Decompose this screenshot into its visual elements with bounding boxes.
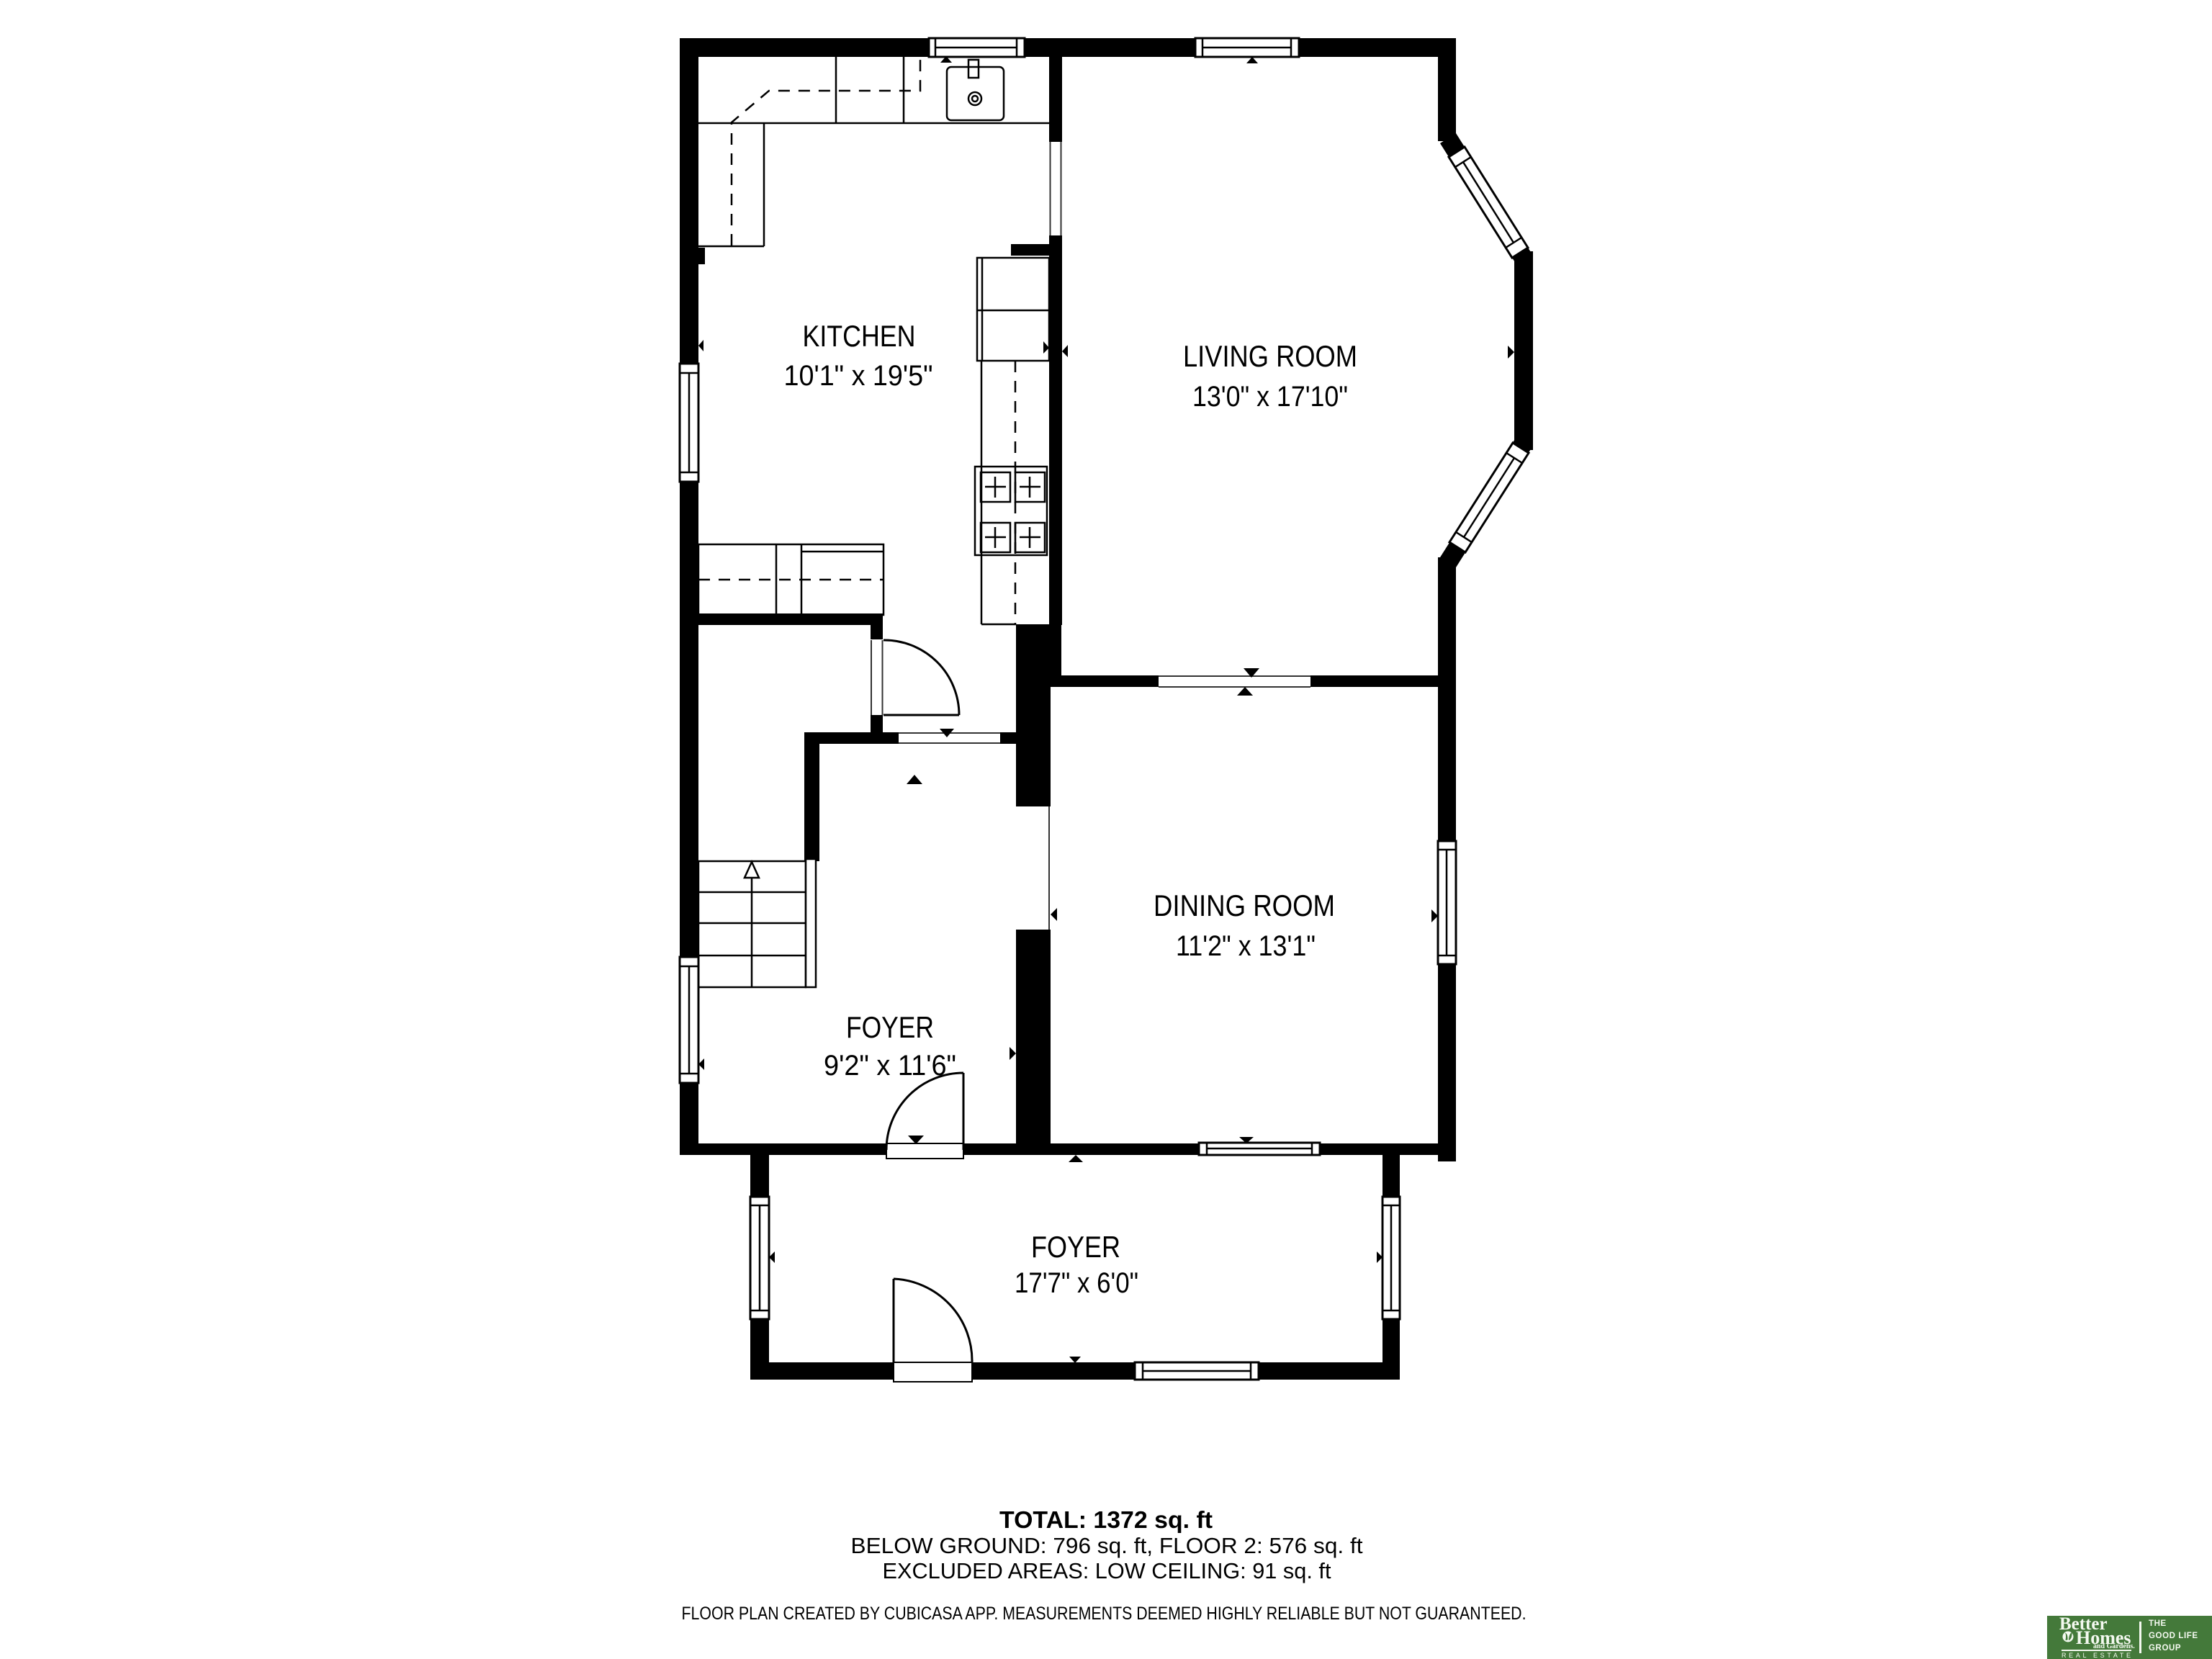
svg-text:and Gardens.: and Gardens. [2093,1642,2135,1650]
svg-text:GOOD LIFE: GOOD LIFE [2149,1632,2198,1640]
svg-text:FOYER: FOYER [1031,1230,1120,1264]
svg-text:9'2" x 11'6": 9'2" x 11'6" [824,1050,956,1082]
svg-text:THE: THE [2149,1619,2167,1628]
svg-text:EXCLUDED AREAS: LOW CEILING: 9: EXCLUDED AREAS: LOW CEILING: 91 sq. ft [883,1558,1331,1583]
svg-text:FOYER: FOYER [846,1010,934,1044]
svg-text:REAL ESTATE: REAL ESTATE [2062,1652,2131,1659]
svg-text:TOTAL: 1372 sq. ft: TOTAL: 1372 sq. ft [999,1506,1213,1533]
svg-text:10'1" x 19'5": 10'1" x 19'5" [784,360,933,392]
svg-text:FLOOR PLAN CREATED BY CUBICASA: FLOOR PLAN CREATED BY CUBICASA APP. MEAS… [682,1604,1527,1624]
svg-text:17'7" x 6'0": 17'7" x 6'0" [1015,1267,1138,1299]
svg-text:11'2" x 13'1": 11'2" x 13'1" [1176,930,1316,962]
svg-text:13'0" x 17'10": 13'0" x 17'10" [1192,381,1348,413]
svg-text:BELOW GROUND: 796 sq. ft, FLOO: BELOW GROUND: 796 sq. ft, FLOOR 2: 576 s… [851,1533,1363,1558]
svg-text:KITCHEN: KITCHEN [803,319,916,353]
svg-text:GROUP: GROUP [2149,1644,2181,1653]
svg-text:LIVING ROOM: LIVING ROOM [1183,339,1357,373]
svg-text:DINING ROOM: DINING ROOM [1154,889,1335,922]
